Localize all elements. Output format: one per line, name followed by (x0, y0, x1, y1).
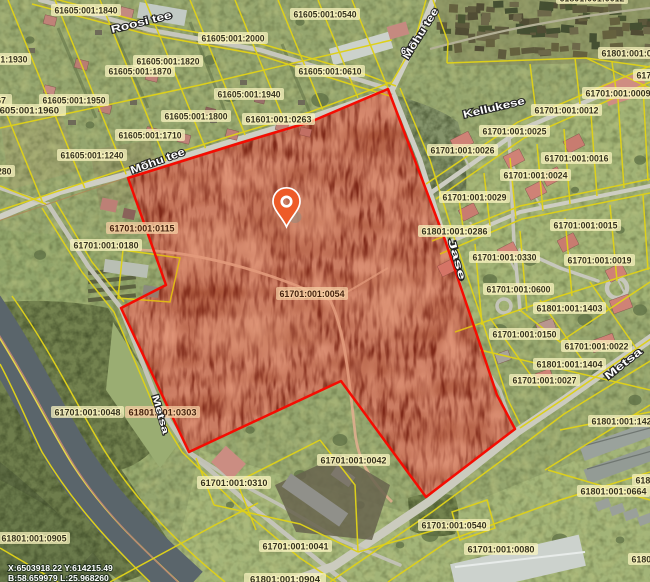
svg-text:61601:001:0263: 61601:001:0263 (246, 114, 312, 124)
svg-text:61701:001:0540: 61701:001:0540 (422, 520, 487, 530)
svg-text:61801:001:0665: 61801:001:0665 (636, 475, 650, 485)
svg-text:61605:001:1240: 61605:001:1240 (61, 150, 124, 160)
svg-text:61701:001:0080: 61701:001:0080 (468, 544, 535, 554)
svg-text:61605:001:1960: 61605:001:1960 (0, 105, 59, 115)
svg-text:61701:001:0012: 61701:001:0012 (535, 105, 599, 115)
svg-text:61701:001:0048: 61701:001:0048 (55, 407, 121, 417)
svg-text:61801:001:0904: 61801:001:0904 (250, 574, 321, 582)
svg-text:61605:001:1940: 61605:001:1940 (218, 89, 281, 99)
svg-text:61801:001:0664: 61801:001:0664 (581, 486, 648, 496)
svg-text:61701:001:0330: 61701:001:0330 (473, 252, 537, 262)
svg-text:61801:001:0905: 61801:001:0905 (2, 533, 67, 543)
svg-text:61701:001:0054: 61701:001:0054 (280, 289, 346, 299)
svg-text:61701:001:0042: 61701:001:0042 (321, 455, 387, 465)
svg-text:61701:001:0310: 61701:001:0310 (201, 478, 268, 488)
svg-text:61701:001:0026: 61701:001:0026 (431, 145, 495, 155)
svg-text:61801:001:1403: 61801:001:1403 (537, 303, 603, 313)
svg-text:61701:001:0180: 61701:001:0180 (74, 240, 139, 250)
svg-text:61701:001:0016: 61701:001:0016 (545, 153, 609, 163)
svg-text:B:58.659979 L:25.968260: B:58.659979 L:25.968260 (8, 573, 109, 582)
svg-text:61605:001:1820: 61605:001:1820 (137, 56, 200, 66)
svg-text:61701:001:0015: 61701:001:0015 (554, 220, 618, 230)
svg-text:61801:001:0666: 61801:001:0666 (632, 554, 650, 564)
svg-text:61605:001:1930: 61605:001:1930 (0, 54, 28, 64)
svg-text:61605:001:0610: 61605:001:0610 (299, 66, 362, 76)
svg-text:61701:001:0150: 61701:001:0150 (493, 329, 557, 339)
svg-text:61701:001:0008: 61701:001:0008 (637, 70, 650, 80)
svg-text:61701:001:0019: 61701:001:0019 (568, 255, 632, 265)
svg-text:61801:001:0012: 61801:001:0012 (560, 0, 625, 3)
svg-text:61701:001:0027: 61701:001:0027 (513, 375, 577, 385)
svg-text:61605:001:2000: 61605:001:2000 (202, 33, 265, 43)
svg-text:61701:001:0022: 61701:001:0022 (565, 341, 629, 351)
svg-text:61801:001:1428: 61801:001:1428 (592, 416, 650, 426)
svg-text:61605:001:1950: 61605:001:1950 (43, 95, 106, 105)
svg-text:61605:001:1800: 61605:001:1800 (165, 111, 228, 121)
svg-text:61801:001:1404: 61801:001:1404 (537, 359, 604, 369)
svg-text:61701:001:0041: 61701:001:0041 (263, 541, 329, 551)
svg-text:61605:001:1840: 61605:001:1840 (55, 5, 118, 15)
svg-text:X:6503918.22 Y:614215.49: X:6503918.22 Y:614215.49 (8, 563, 113, 573)
svg-text:67: 67 (0, 95, 6, 105)
svg-text:61701:001:0115: 61701:001:0115 (110, 223, 175, 233)
svg-text:61801:001:0040: 61801:001:0040 (602, 48, 650, 58)
svg-text:61605:001:1870: 61605:001:1870 (109, 66, 172, 76)
svg-text:61605:001:1710: 61605:001:1710 (119, 130, 182, 140)
svg-text:61701:001:0009: 61701:001:0009 (586, 88, 650, 98)
svg-text:61701:001:0024: 61701:001:0024 (504, 170, 569, 180)
svg-text:61801:001:0286: 61801:001:0286 (422, 226, 488, 236)
svg-text:61605:001:0540: 61605:001:0540 (294, 9, 357, 19)
svg-text:61605:001:0280: 61605:001:0280 (0, 166, 12, 176)
svg-text:61701:001:0600: 61701:001:0600 (487, 284, 551, 294)
svg-text:6: 6 (401, 46, 406, 56)
svg-text:61701:001:0025: 61701:001:0025 (483, 126, 547, 136)
svg-text:61701:001:0029: 61701:001:0029 (443, 192, 507, 202)
